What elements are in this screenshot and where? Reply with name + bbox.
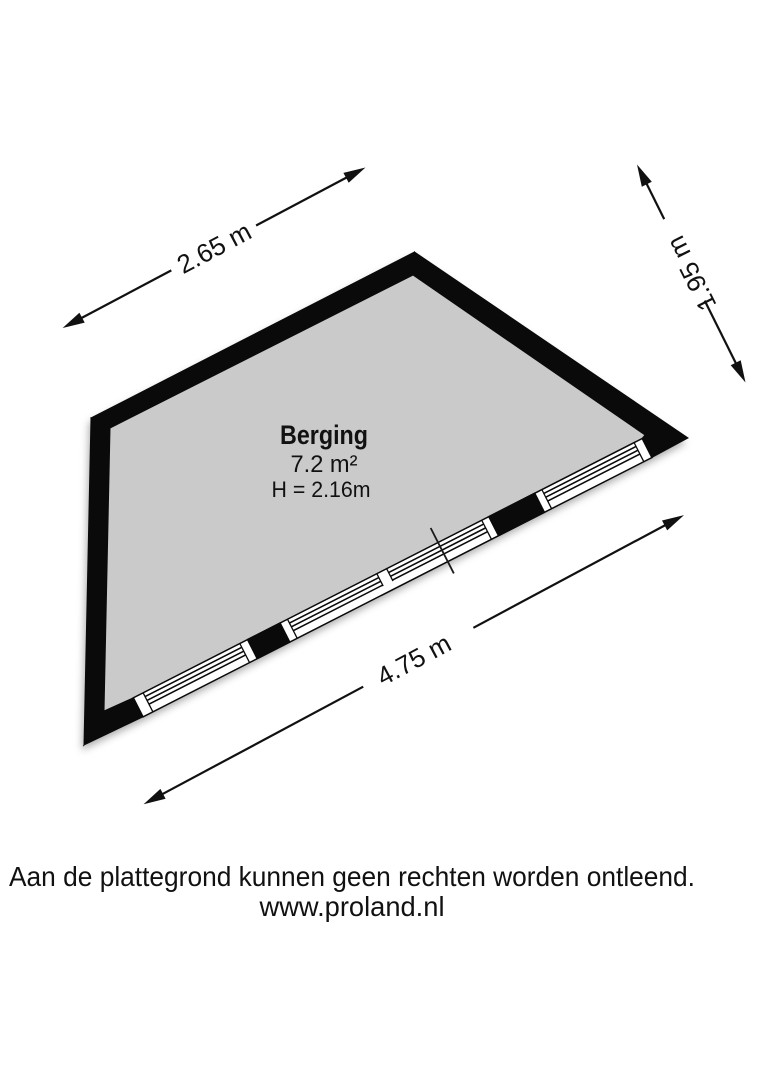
svg-text:Berging: Berging <box>280 420 368 450</box>
svg-text:Aan de plattegrond kunnen geen: Aan de plattegrond kunnen geen rechten w… <box>9 861 695 892</box>
svg-text:www.proland.nl: www.proland.nl <box>259 891 445 922</box>
svg-text:H = 2.16m: H = 2.16m <box>272 477 371 502</box>
svg-text:7.2 m²: 7.2 m² <box>291 451 358 478</box>
